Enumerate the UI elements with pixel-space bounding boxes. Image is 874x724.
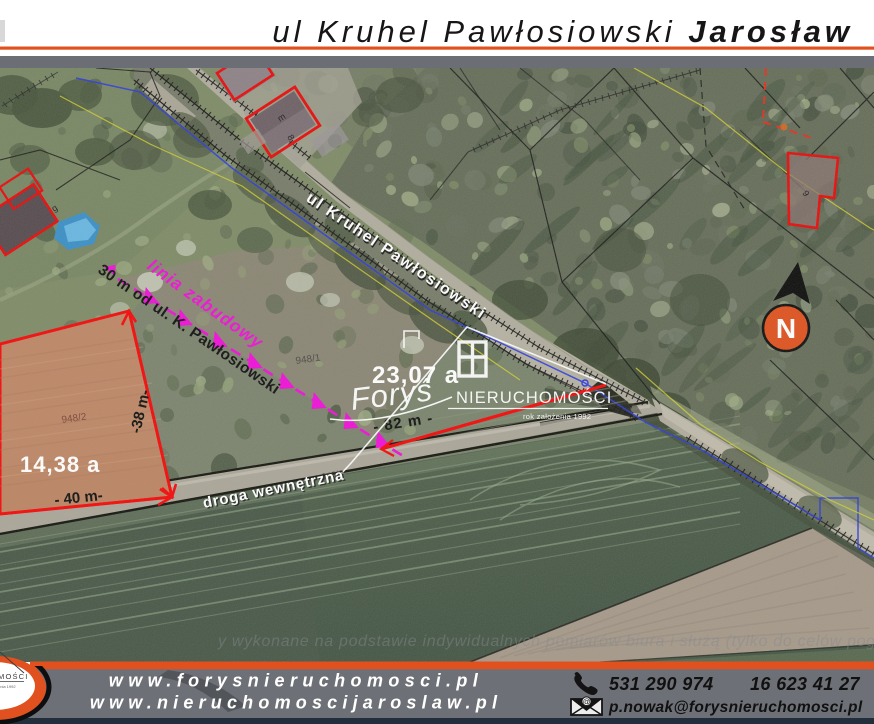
svg-text:MOŚCI: MOŚCI — [0, 672, 29, 681]
svg-text:p.nowak@forysnieruchomosci.pl: p.nowak@forysnieruchomosci.pl — [608, 699, 863, 716]
svg-text:531 290 974: 531 290 974 — [609, 674, 714, 694]
svg-text:ul Kruhel Pawłosiowski Jarosła: ul Kruhel Pawłosiowski Jarosław — [272, 14, 853, 49]
svg-text:16 623 41 27: 16 623 41 27 — [750, 674, 860, 694]
svg-text:www.nieruchomoscijaroslaw.pl: www.nieruchomoscijaroslaw.pl — [90, 693, 502, 713]
svg-text:enia 1992: enia 1992 — [0, 684, 16, 689]
svg-text:@: @ — [582, 698, 590, 707]
svg-text:www.forysnieruchomosci.pl: www.forysnieruchomosci.pl — [109, 671, 483, 691]
